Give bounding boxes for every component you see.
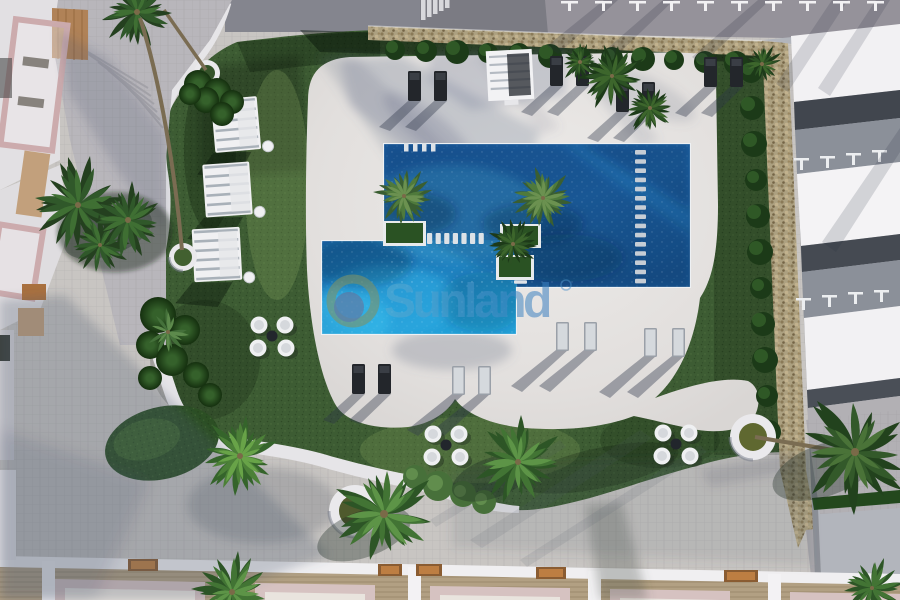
svg-text:Sunland: Sunland bbox=[384, 275, 550, 328]
